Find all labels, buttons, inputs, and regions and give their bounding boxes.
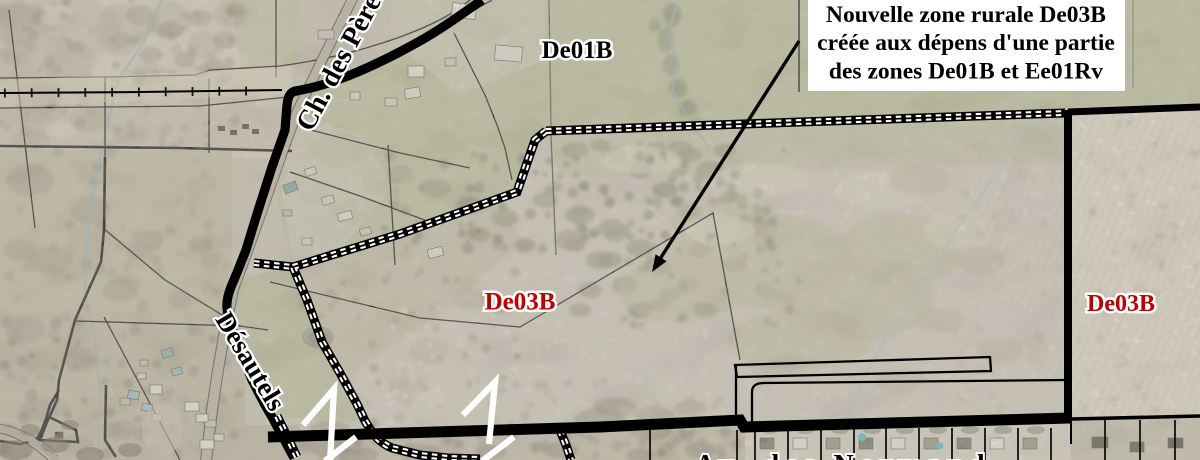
svg-text:De01B: De01B xyxy=(542,37,613,64)
svg-text:Nouvelle zone rurale De03B: Nouvelle zone rurale De03B xyxy=(826,2,1106,28)
svg-text:créée aux dépens d'une partie: créée aux dépens d'une partie xyxy=(817,30,1115,56)
svg-text:De03B: De03B xyxy=(485,289,556,316)
svg-text:De03B: De03B xyxy=(1087,291,1155,317)
svg-text:des zones De01B et Ee01Rv: des zones De01B et Ee01Rv xyxy=(829,59,1103,85)
svg-text:Av. des Normand: Av. des Normand xyxy=(695,450,991,460)
